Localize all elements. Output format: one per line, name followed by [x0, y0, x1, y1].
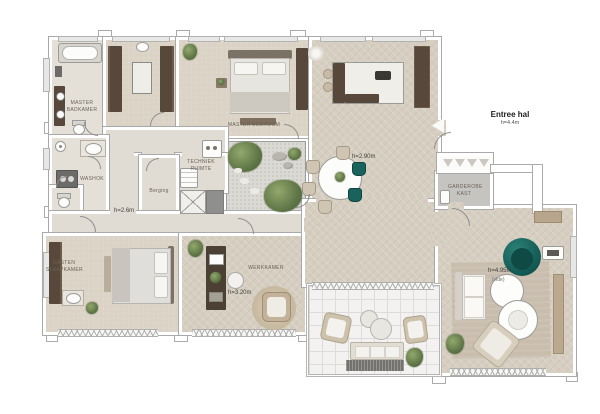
rattan-lounge-chair [262, 292, 291, 322]
bench-cushion [355, 346, 370, 358]
outdoor-table [370, 318, 392, 340]
wall-stub [566, 372, 578, 382]
desk [206, 246, 226, 310]
wardrobe [108, 46, 122, 112]
label-laundry: WASHOK [78, 176, 106, 183]
toilet [72, 120, 84, 133]
rock [272, 152, 287, 161]
wall-stub [46, 332, 58, 342]
outdoor-bench [350, 342, 404, 360]
label-master-bathroom: MASTER BADKAMER [64, 100, 100, 113]
island-cabinet [333, 63, 345, 103]
folding-window [58, 329, 158, 337]
closet-island [132, 62, 152, 94]
dining-chair [306, 160, 320, 174]
chair-cushion [407, 320, 424, 339]
sofa-cushion [464, 276, 484, 297]
label-guest-bedroom: GASTEN SLAAPKAMER [46, 260, 82, 273]
bed-throw [112, 248, 130, 302]
pillow [234, 62, 258, 75]
window [570, 236, 577, 278]
bed-bench [104, 256, 111, 292]
room-hall-south [305, 202, 438, 284]
guest-bed [112, 246, 174, 304]
label-line2: RUIMTE [186, 166, 216, 173]
note-living-vide: (vide) [492, 277, 505, 283]
chair-cushion [479, 327, 513, 361]
window [43, 148, 50, 170]
heat-pump-unit [202, 140, 222, 158]
sink-oval [85, 143, 102, 155]
label-text: MASTER BEDROOM [228, 122, 280, 128]
tech-floor [206, 190, 224, 214]
stepping-stone [250, 188, 259, 194]
fireplace-niche [542, 246, 564, 260]
coat-hook [479, 159, 489, 167]
sofa-back [455, 272, 462, 320]
coat-hook [443, 159, 453, 167]
laundry-counter [80, 140, 106, 157]
desk-chair [227, 272, 244, 289]
stepping-stone [240, 178, 249, 184]
label-line2: KAST [448, 191, 480, 198]
table-centerpiece [335, 172, 345, 182]
note-text: (vide) [492, 277, 505, 283]
wall-stub [98, 30, 112, 40]
shaft [180, 190, 206, 214]
wall-stub [174, 332, 188, 342]
coat-hook [455, 159, 465, 167]
entree-hal-annotation: Entree hal h=4.4m [475, 110, 545, 126]
window [320, 36, 366, 42]
bed-throw [230, 92, 290, 112]
opening [110, 152, 134, 160]
label-text: WERKKAMER [248, 265, 283, 271]
dining-chair-teal [352, 162, 366, 176]
window [58, 36, 98, 42]
towel-radiator [55, 66, 62, 77]
dim-living-height: h=4.95m [488, 268, 512, 274]
window [372, 36, 426, 42]
chair-cushion [267, 297, 286, 317]
label-text: WASHOK [80, 176, 104, 182]
bench-cushion [370, 346, 385, 358]
dining-chair [318, 200, 332, 214]
desk-plant [210, 272, 221, 283]
bar-stool [323, 69, 333, 79]
stepping-stone [234, 168, 242, 173]
bathtub-basin [62, 46, 98, 60]
shower-head [55, 141, 66, 152]
pillow [262, 62, 286, 75]
knob [213, 146, 217, 150]
floor-plan: MASTER BEDROOM MASTER BADKAMER GASTEN SL… [0, 0, 600, 414]
sofa-cushion [464, 297, 484, 318]
knob [206, 146, 210, 150]
outdoor-chair [402, 315, 429, 345]
outdoor-chair [319, 311, 352, 344]
label-garderobe: GARDEROBE KAST [448, 184, 480, 197]
bench-cushion [385, 346, 400, 358]
entree-hal-title: Entree hal [475, 110, 545, 119]
dim-text: h=2.6m [114, 208, 134, 214]
shower-drain [59, 145, 62, 148]
wall-stub [432, 374, 446, 384]
dim-office-height: h=3.20m [228, 290, 252, 296]
island-sink [375, 71, 391, 80]
sofa [455, 272, 485, 320]
guest-washstand [62, 290, 84, 306]
folding-door-terrace [312, 282, 434, 290]
label-tech: TECHNIEK RUIMTE [186, 159, 216, 172]
label-text: Berging [149, 188, 168, 194]
guest-wardrobe [49, 242, 62, 304]
sideboard [553, 274, 564, 354]
dim-corridor-height: h=2.6m [114, 208, 134, 214]
books [209, 292, 223, 302]
bathtub [58, 43, 102, 63]
dim-dining-height: h=2.90m [352, 154, 376, 160]
chair-cushion [325, 317, 346, 338]
washer-door [68, 176, 74, 182]
bedroom-wardrobe [296, 48, 308, 110]
label-line2: BADKAMER [64, 107, 100, 114]
room-corridor-b [106, 156, 138, 214]
bar-stool [323, 82, 333, 92]
folding-window [192, 329, 296, 337]
window [224, 36, 298, 42]
dim-text: h=4.95m [488, 268, 512, 274]
outdoor-rug [346, 360, 404, 371]
kitchen-island [332, 62, 404, 104]
label-office: WERKKAMER [246, 265, 286, 272]
pillow [154, 252, 168, 274]
folding-door-living [450, 368, 546, 376]
laptop [209, 254, 224, 265]
kitchen-tall-cabinet [414, 46, 430, 108]
label-master-bedroom: MASTER BEDROOM [214, 122, 294, 129]
coat-hook [467, 159, 477, 167]
wall-cabinet [534, 211, 562, 223]
toilet-bowl [73, 124, 85, 135]
dining-chair-teal [348, 188, 362, 202]
label-line2: SLAAPKAMER [46, 267, 82, 274]
dim-text: h=2.90m [352, 154, 376, 160]
entree-wall [532, 164, 543, 214]
toilet-bowl [58, 197, 70, 208]
toilet [57, 193, 69, 206]
window [43, 58, 50, 92]
table-tray [508, 310, 528, 330]
dim-text: h=3.20m [228, 290, 252, 296]
opening [304, 218, 318, 232]
sink-oval [66, 293, 81, 304]
fireplace-inner [547, 250, 559, 256]
master-bed [228, 50, 292, 114]
island-cabinet [345, 94, 379, 103]
pendant-lamp [136, 42, 149, 52]
pillow [154, 276, 168, 298]
label-line1: TECHNIEK [186, 159, 216, 166]
label-storage: Berging [144, 188, 174, 195]
chair-seat [511, 248, 533, 270]
opening [432, 212, 446, 246]
label-line1: GARDEROBE [448, 184, 480, 191]
dining-chair [336, 146, 350, 160]
rock [283, 162, 293, 169]
entree-hal-height: h=4.4m [475, 120, 545, 126]
window [188, 36, 220, 42]
wardrobe [160, 46, 174, 112]
